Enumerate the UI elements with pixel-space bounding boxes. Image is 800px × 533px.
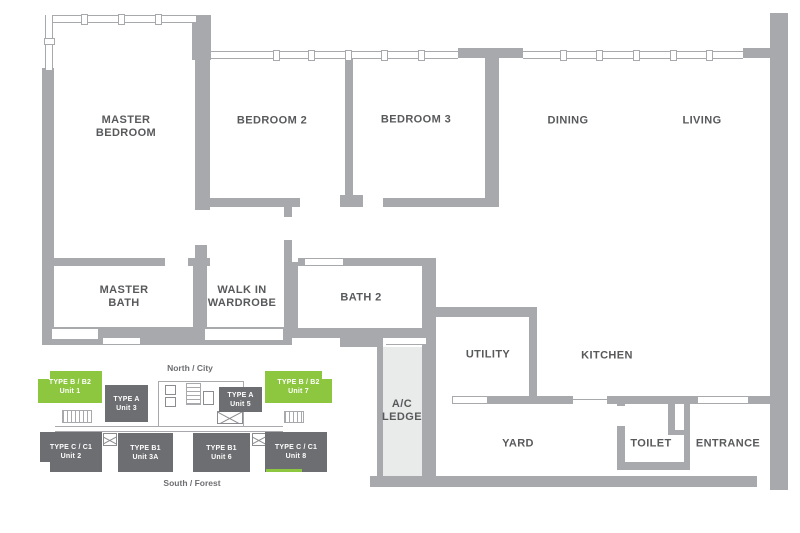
window-band-bath2 [305, 258, 343, 266]
keyplan-unit-3: TYPE A Unit 3 [105, 385, 148, 422]
wall-bedroom3-bottom [383, 198, 485, 207]
unit-1-notch [38, 371, 50, 379]
wall-bedroom-doorframe [340, 195, 363, 207]
x-marker-icon [217, 411, 243, 424]
stairs-icon [62, 410, 92, 423]
wall-utility-top [436, 307, 537, 317]
wall-masterbath-right [193, 266, 207, 331]
window-band-bedrooms-top [211, 51, 458, 59]
room-label-utility: UTILITY [466, 349, 510, 362]
window-band-dining-living-top [523, 51, 743, 59]
unit-number-label: Unit 7 [288, 387, 309, 396]
keyplan-unit-3a: TYPE B1 Unit 3A [118, 433, 173, 472]
wall-masterbath-top-left [54, 258, 165, 266]
unit-number-label: Unit 8 [286, 452, 307, 461]
unit-number-label: Unit 1 [60, 387, 81, 396]
x-marker-icon [103, 433, 117, 446]
window-mullion [81, 14, 88, 25]
floorplan-canvas: MASTER BEDROOM BEDROOM 2 BEDROOM 3 DININ… [0, 0, 800, 533]
unit-number-label: Unit 5 [230, 400, 251, 409]
wall-ledge-stub [340, 338, 383, 347]
window-mullion [118, 14, 125, 25]
room-label-bath-2: BATH 2 [340, 292, 381, 305]
window-opening-wardrobe [205, 329, 283, 340]
keyplan-unit-5: TYPE A Unit 5 [219, 387, 262, 412]
window-mullion [155, 14, 162, 25]
wall-toilet-right [684, 404, 690, 470]
unit-type-label: TYPE C / C1 [50, 443, 92, 452]
room-label-bedroom-2: BEDROOM 2 [237, 115, 307, 128]
wall-bedroom2-bedroom3 [345, 58, 353, 198]
unit-type-label: TYPE A [113, 395, 139, 404]
unit-type-label: TYPE C / C1 [275, 443, 317, 452]
window-mullion [308, 50, 315, 61]
window-opening-masterbath [52, 329, 98, 339]
door-threshold-kitchen-yard [573, 399, 607, 400]
room-label-ac-ledge: A/C LEDGE [382, 398, 422, 424]
room-label-kitchen: KITCHEN [581, 350, 633, 363]
room-label-master-bedroom: MASTER BEDROOM [96, 114, 156, 140]
north-orientation-label: North / City [167, 363, 213, 373]
room-label-dining: DINING [548, 115, 589, 128]
unit-number-label: Unit 3 [116, 404, 137, 413]
unit-type-label: TYPE B1 [206, 444, 237, 453]
south-orientation-label: South / Forest [163, 478, 220, 488]
wall-bath2-left [284, 262, 298, 338]
wall-corridor-right-b [284, 240, 292, 262]
unit-8-green-edge [266, 469, 302, 472]
wall-toilet-niche-bottom [668, 430, 684, 435]
window-band-masterbed-top [45, 15, 196, 23]
room-label-living: LIVING [682, 115, 721, 128]
wall-entrance-top-stub [748, 396, 770, 404]
window-mullion [345, 50, 352, 61]
window-mullion [560, 50, 567, 61]
window-band-masterbath-bottom [103, 337, 140, 345]
unit-7-notch [322, 371, 332, 379]
wall-toilet-bottom [617, 462, 690, 470]
wall-corridor-right-a [284, 207, 292, 217]
unit-type-label: TYPE B / B2 [277, 378, 319, 387]
unit-2-notch [40, 462, 50, 472]
window-mullion [706, 50, 713, 61]
x-marker-icon [252, 433, 266, 446]
unit-type-label: TYPE A [227, 391, 253, 400]
window-mullion [381, 50, 388, 61]
window-band-entrance [698, 396, 748, 404]
window-mullion [670, 50, 677, 61]
wall-top-block [458, 48, 523, 58]
room-label-toilet: TOILET [630, 438, 671, 451]
wall-masterbed-bedroom2 [195, 58, 210, 210]
room-label-yard: YARD [502, 438, 534, 451]
lift-shaft [165, 385, 176, 395]
wall-left [42, 68, 54, 345]
window-mullion [44, 38, 55, 45]
room-label-bedroom-3: BEDROOM 3 [381, 114, 451, 127]
keyplan-unit-6: TYPE B1 Unit 6 [193, 433, 250, 472]
unit-type-label: TYPE B / B2 [49, 378, 91, 387]
room-label-walk-in-wardrobe: WALK IN WARDROBE [208, 284, 277, 310]
room-label-entrance: ENTRANCE [696, 438, 760, 451]
wall-bottom [370, 476, 757, 487]
window-mullion [633, 50, 640, 61]
lift-shaft [165, 397, 176, 407]
wall-bedroom2-bottom [210, 198, 300, 207]
wall-utility-right [529, 307, 537, 404]
window-band-corridor [386, 337, 426, 345]
window-mullion [273, 50, 280, 61]
wall-toilet-left-upper [617, 396, 625, 406]
wall-top-stub-right [743, 48, 770, 58]
window-mullion [418, 50, 425, 61]
unit-number-label: Unit 6 [211, 453, 232, 462]
window-mullion [596, 50, 603, 61]
keyplan-unit-8: TYPE C / C1 Unit 8 [265, 432, 327, 472]
wall-kitchen-yard [537, 396, 573, 404]
unit-number-label: Unit 3A [133, 453, 159, 462]
core-stairs-icon [186, 383, 201, 405]
wall-masterbath-top-right [188, 258, 210, 266]
wall-bedroom3-dining [485, 48, 499, 207]
wall-right [770, 13, 788, 490]
lift-shaft [203, 391, 214, 405]
window-band-masterbed-left [45, 15, 53, 70]
stairs-icon [284, 411, 304, 423]
wall-bath2-right [422, 258, 436, 318]
unit-number-label: Unit 2 [61, 452, 82, 461]
window-band-utility-yard [453, 396, 487, 404]
room-label-master-bath: MASTER BATH [100, 284, 149, 310]
unit-type-label: TYPE B1 [130, 444, 161, 453]
